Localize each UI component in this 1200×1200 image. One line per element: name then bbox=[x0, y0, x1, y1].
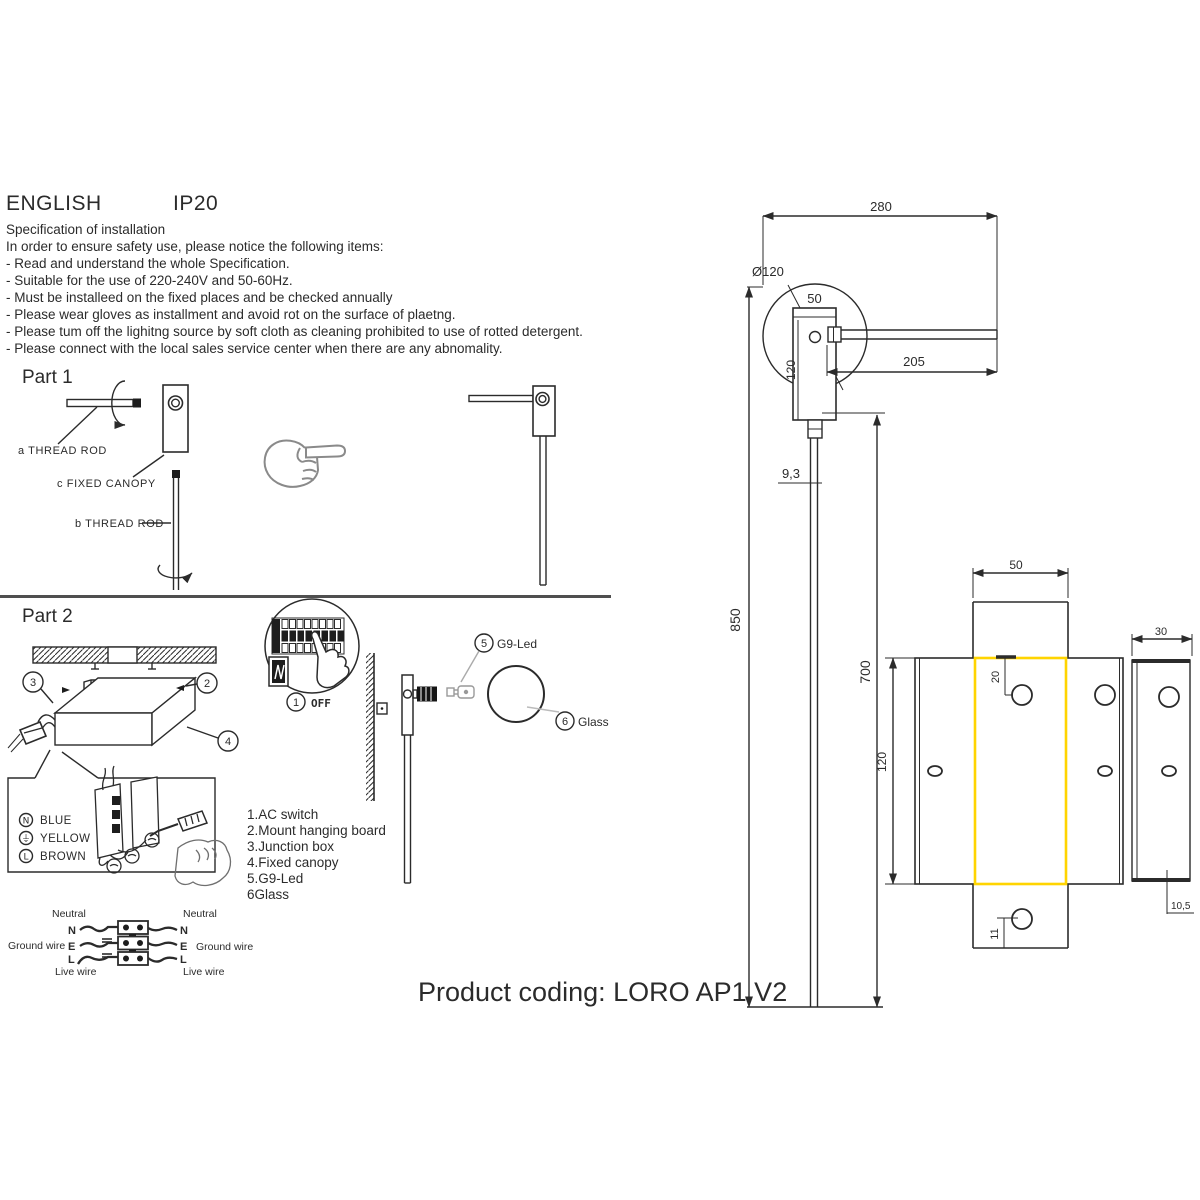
spec-item: - Read and understand the whole Specific… bbox=[6, 255, 583, 272]
spec-title: Specification of installation bbox=[6, 221, 583, 238]
step-item: 5.G9-Led bbox=[247, 871, 386, 887]
vertical-rod bbox=[808, 420, 822, 1007]
spec-item: - Please connect with the local sales se… bbox=[6, 340, 583, 357]
dim-bracket-120: 120 bbox=[875, 658, 915, 884]
terminal-blocks bbox=[118, 921, 148, 965]
step-item: 3.Junction box bbox=[247, 839, 386, 855]
spec-item: - Please tum off the lighitng source by … bbox=[6, 323, 583, 340]
product-coding: Product coding: LORO AP1 V2 bbox=[418, 977, 787, 1008]
wiring-left-ground: Ground wire bbox=[8, 940, 65, 952]
svg-text:30: 30 bbox=[1155, 626, 1167, 638]
dim-30: 30 bbox=[1132, 626, 1192, 656]
bracket-side-view: 30 10,5 bbox=[1132, 626, 1194, 914]
wire-color-legend: N BLUE ⏚ YELLOW L BROWN bbox=[20, 814, 91, 864]
step-item: 4.Fixed canopy bbox=[247, 855, 386, 871]
callout-4: 4 bbox=[187, 727, 238, 751]
spec-intro: In order to ensure safety use, please no… bbox=[6, 238, 583, 255]
callout-6: 6 Glass bbox=[556, 712, 609, 730]
dim-205: 205 bbox=[827, 345, 997, 376]
earth-symbol: ⏚ bbox=[21, 834, 30, 845]
canopy-front: 50 120 bbox=[784, 291, 836, 420]
supply-cable bbox=[8, 715, 55, 752]
step-item: 1.AC switch bbox=[247, 807, 386, 823]
off-label: OFF bbox=[311, 697, 331, 710]
live-symbol: L bbox=[23, 853, 28, 863]
canopy-box bbox=[55, 678, 195, 745]
label-thread-rod-b: b THREAD ROD bbox=[75, 518, 164, 530]
step-item: 2.Mount hanging board bbox=[247, 823, 386, 839]
svg-text:10,5: 10,5 bbox=[1171, 901, 1191, 912]
label-fixed-canopy-c: c FIXED CANOPY bbox=[57, 478, 156, 490]
wiring-right-n: N bbox=[180, 925, 188, 937]
svg-text:9,3: 9,3 bbox=[782, 466, 800, 481]
wiring-wires-right bbox=[148, 928, 177, 962]
part2-diagram: 3 2 4 N BLUE ⏚ YELLOW bbox=[0, 600, 700, 1010]
dim-canopy-height: 120 bbox=[784, 360, 798, 380]
junction-illustration bbox=[95, 766, 230, 885]
svg-text:700: 700 bbox=[857, 660, 873, 684]
svg-text:4: 4 bbox=[225, 736, 231, 748]
wiring-left-neutral: Neutral bbox=[52, 908, 86, 920]
leader-c bbox=[133, 455, 164, 477]
neutral-symbol: N bbox=[23, 817, 30, 827]
wiring-right-live: Live wire bbox=[183, 966, 225, 978]
breaker-panel bbox=[272, 618, 344, 654]
dim-700: 700 bbox=[822, 413, 885, 1007]
label-thread-rod-a: a THREAD ROD bbox=[18, 445, 107, 457]
spec-item: - Must be installeed on the fixed places… bbox=[6, 289, 583, 306]
arm-side-view bbox=[828, 327, 997, 342]
steps-list: 1.AC switch 2.Mount hanging board 3.Junc… bbox=[247, 807, 386, 903]
callout-3: 3 bbox=[23, 672, 70, 703]
bracket-flat-pattern: 50 120 20 11 bbox=[875, 558, 1123, 948]
fixed-canopy-c bbox=[163, 385, 188, 452]
wiring-left-l: L bbox=[68, 954, 75, 966]
wire-strip-marks bbox=[102, 939, 112, 957]
dim-9-3: 9,3 bbox=[778, 466, 822, 483]
mount-hole bbox=[1012, 909, 1032, 929]
svg-text:280: 280 bbox=[870, 199, 892, 214]
holding-hand-icon bbox=[175, 840, 230, 885]
thread-rod-a bbox=[67, 381, 141, 425]
svg-text:205: 205 bbox=[903, 354, 925, 369]
wiring-left-e: E bbox=[68, 941, 75, 953]
wiring-right-ground: Ground wire bbox=[196, 941, 253, 953]
callout-5: 5 G9-Led bbox=[461, 634, 537, 682]
pointing-hand-icon bbox=[265, 441, 345, 487]
svg-text:1: 1 bbox=[293, 697, 299, 709]
dim-canopy-width: 50 bbox=[807, 291, 821, 306]
leader-glass bbox=[527, 707, 559, 712]
svg-text:20: 20 bbox=[990, 671, 1002, 683]
svg-text:50: 50 bbox=[1009, 558, 1023, 572]
dim-11: 11 bbox=[989, 918, 1018, 948]
language-title: ENGLISH bbox=[6, 192, 102, 216]
legend-yellow: YELLOW bbox=[40, 833, 90, 845]
part1-diagram: a THREAD ROD c FIXED CANOPY b THREAD ROD bbox=[0, 368, 640, 598]
leader-a bbox=[58, 407, 97, 444]
wiring-left-live: Live wire bbox=[55, 966, 97, 978]
wiring-left-n: N bbox=[68, 925, 76, 937]
wiring-right-neutral: Neutral bbox=[183, 908, 217, 920]
wiring-diagram: Neutral N Ground wire E L Live wire bbox=[8, 908, 253, 978]
svg-text:11: 11 bbox=[989, 928, 1001, 939]
legend-blue: BLUE bbox=[40, 815, 72, 827]
wall bbox=[366, 653, 387, 801]
g9-bulb-icon bbox=[447, 686, 474, 698]
svg-text:5: 5 bbox=[481, 638, 487, 650]
spec-block: Specification of installation In order t… bbox=[6, 221, 583, 357]
glass-sphere bbox=[488, 666, 544, 722]
arrow-icon bbox=[62, 687, 70, 693]
ip-rating: IP20 bbox=[173, 192, 218, 216]
lamp-side-view bbox=[402, 675, 437, 883]
g9-label: G9-Led bbox=[497, 637, 537, 651]
svg-text:2: 2 bbox=[204, 678, 210, 690]
rotation-arrow-icon bbox=[158, 565, 192, 578]
spec-item: - Suitable for the use of 220-240V and 5… bbox=[6, 272, 583, 289]
spec-item: - Please wear gloves as installment and … bbox=[6, 306, 583, 323]
screw-thread-icon bbox=[417, 687, 437, 702]
svg-text:6: 6 bbox=[562, 716, 568, 728]
wiring-wires-left bbox=[78, 927, 118, 964]
svg-text:850: 850 bbox=[727, 608, 743, 632]
step-item: 6Glass bbox=[247, 887, 386, 903]
glass-label: Glass bbox=[578, 715, 609, 729]
dim-850: 850 bbox=[727, 287, 763, 1007]
breaker-step: 1 OFF bbox=[265, 599, 359, 711]
svg-text:3: 3 bbox=[30, 677, 36, 689]
main-switch bbox=[269, 657, 288, 686]
dim-bracket-50: 50 bbox=[973, 558, 1068, 598]
legend-brown: BROWN bbox=[40, 851, 86, 863]
wiring-right-l: L bbox=[180, 954, 187, 966]
section-divider bbox=[0, 595, 611, 598]
assembled-lamp bbox=[469, 386, 555, 585]
thread-rod-b bbox=[158, 470, 192, 590]
wiring-right-e: E bbox=[180, 941, 187, 953]
instruction-sheet: ENGLISH IP20 Specification of installati… bbox=[0, 0, 1200, 1200]
svg-text:120: 120 bbox=[875, 752, 889, 772]
dim-diameter-label: Ø120 bbox=[752, 264, 784, 279]
ceiling bbox=[33, 647, 216, 669]
technical-drawing: 280 Ø120 50 120 205 bbox=[700, 190, 1200, 1020]
